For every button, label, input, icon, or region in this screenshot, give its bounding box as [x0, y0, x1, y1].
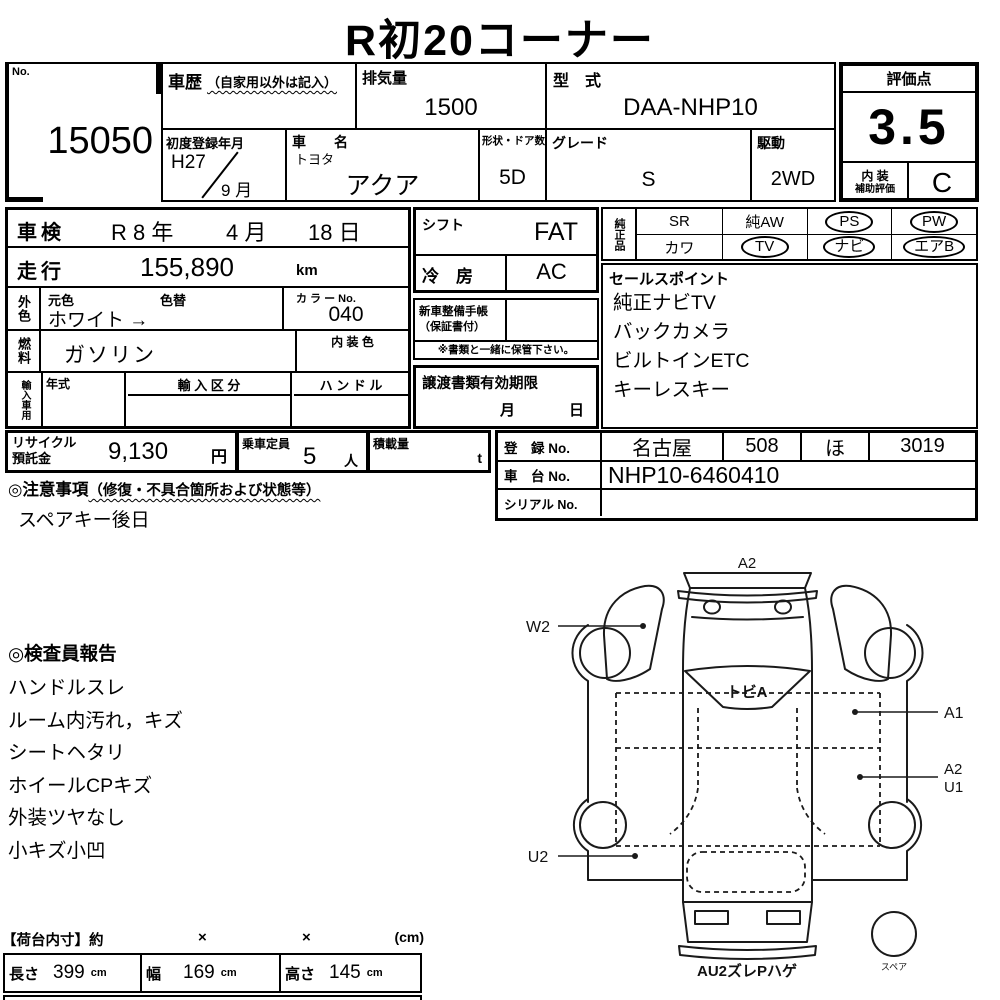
exterior-color-label: 外色 [8, 288, 41, 329]
right-door-open [831, 586, 891, 681]
chassis-number-row: 車 台 No. NHP10-6460410 [498, 462, 975, 490]
next-table-edge [3, 995, 422, 1000]
service-book-note: ※書類と一緒に保管下さい。 [415, 340, 597, 358]
cargo-length-cell: 長さ 399 cm [5, 955, 142, 991]
color-no-value: 040 [284, 303, 408, 327]
load-capacity-unit: t [477, 450, 482, 466]
service-book-box: 新車整備手帳 （保証書付） ※書類と一緒に保管下さい。 [413, 298, 599, 360]
recycle-deposit-value: 9,130 [108, 438, 168, 466]
caution-text: スペアキー後日 [8, 505, 320, 532]
history-cell: 車歴 （自家用以外は記入） [161, 62, 357, 130]
registration-number-label: 登 録 No. [498, 433, 602, 460]
mileage-value: 155,890 [140, 252, 234, 283]
sales-point: 純正ナビTV [603, 289, 976, 318]
inspector-report-label: ◎検査員報告 [8, 640, 183, 666]
import-year-cell: 年式 [43, 373, 126, 426]
fuel-value: ガソリン [64, 339, 156, 369]
chassis-number-value: NHP10-6460410 [602, 462, 975, 488]
grade-value: S [547, 168, 750, 192]
cargo-dimensions-header: 【荷台内寸】約 × × (cm) [2, 929, 424, 951]
grade-label: グレード [552, 133, 608, 153]
sales-point: ビルトインETC [603, 347, 976, 376]
score-value: 3.5 [843, 93, 975, 161]
exterior-color-row: 外色 元色 色替 ホワイト → カ ラ ー No. 040 [8, 288, 408, 331]
registration-number-row: 登 録 No. 名古屋 508 ほ 3019 [498, 433, 975, 462]
damage-code-front: A2 [738, 555, 756, 572]
inspector-finding: シートヘタリ [8, 737, 183, 770]
inspector-finding: ホイールCPキズ [8, 770, 183, 803]
cargo-height-value: 145 [329, 962, 361, 984]
sales-point: バックカメラ [603, 318, 976, 347]
model-code-value: DAA-NHP10 [547, 94, 834, 122]
spare-tire-label: スペア [881, 962, 907, 972]
car-name-cell: 車 名 トヨタ アクア [285, 128, 480, 202]
cargo-width-cell: 幅 169 cm [142, 955, 281, 991]
serial-number-value [602, 490, 975, 516]
interior-score-row: 内 装 補助評価 C [843, 161, 975, 202]
oem-item-airbag: エアB [891, 234, 976, 259]
auction-sheet-page: { "title": "R初20コーナー", "header": { "no":… [0, 0, 1000, 1000]
ac-value: AC [507, 259, 596, 285]
interior-score-value: C [909, 163, 975, 202]
inspector-finding: ハンドルスレ [8, 672, 183, 705]
car-model: アクア [287, 166, 478, 202]
vehicle-detail-block: 車検 R 8 年 4 月 18 日 走行 155,890 km 外色 元色 色替… [5, 207, 411, 429]
transfer-day-label: 日 [569, 399, 584, 420]
exterior-color-value: ホワイト → [48, 305, 148, 332]
inspector-finding: 小キズ小凹 [8, 835, 183, 868]
shaken-row: 車検 R 8 年 4 月 18 日 [8, 210, 408, 248]
lot-number-box: No. 15050 [5, 62, 161, 202]
caution-label: ◎注意事項 [8, 481, 88, 499]
score-label: 評価点 [843, 66, 975, 93]
shaken-label: 車検 [17, 216, 65, 245]
page-title: R初20コーナー [0, 6, 1000, 68]
caution-note: （修復・不具合箇所および状態等） [88, 483, 320, 499]
interior-score-label: 内 装 補助評価 [843, 163, 909, 202]
damage-code-windshield: トビA [727, 684, 768, 701]
headlamp-washer [775, 601, 791, 614]
mileage-row: 走行 155,890 km [8, 248, 408, 288]
registration-table: 登 録 No. 名古屋 508 ほ 3019 車 台 No. NHP10-646… [495, 430, 978, 521]
fuel-row: 燃料 ガソリン 内 装 色 [8, 331, 408, 373]
inspector-finding: 外装ツヤなし [8, 802, 183, 835]
recycle-deposit-label: リサイクル 預託金 [12, 435, 76, 468]
oem-item-aw: 純AW [722, 209, 807, 234]
lot-number-value: 15050 [47, 120, 153, 163]
interior-color-label: 内 装 色 [297, 333, 408, 350]
oem-item-sr: SR [637, 209, 722, 234]
registration-kana: ほ [800, 433, 868, 460]
import-handle-cell: ハ ン ド ル [294, 373, 408, 426]
first-registration-year: H27 [171, 152, 206, 174]
load-capacity-cell: 積載量 t [367, 430, 491, 473]
car-damage-diagram: A2 W2 トビA A1 A2 U1 U2 AU2ズレPハゲ スペア [500, 550, 992, 1000]
multiply-sign: × [198, 929, 207, 946]
doors-value: 5D [480, 166, 545, 190]
caution-section: ◎注意事項（修復・不具合箇所および状態等） スペアキー後日 [8, 476, 320, 532]
shaken-year: R 8 年 [111, 215, 173, 247]
body-left-edge [683, 588, 690, 902]
registration-number: 3019 [868, 433, 975, 460]
import-year-label: 年式 [46, 375, 70, 392]
left-door-open [604, 586, 664, 681]
shift-ac-box: シフト FAT 冷 房 AC [413, 207, 599, 293]
model-code-label: 型 式 [553, 67, 601, 91]
import-handle-label: ハ ン ド ル [294, 375, 408, 394]
sales-points-box: セールスポイント 純正ナビTV バックカメラ ビルトインETC キーレスキー [601, 263, 978, 429]
cargo-width-value: 169 [183, 962, 215, 984]
ac-row: 冷 房 AC [416, 256, 596, 290]
first-registration-month: 9 月 [221, 176, 252, 201]
history-note: （自家用以外は記入） [207, 72, 337, 91]
seating-capacity-value: 5 [303, 443, 316, 471]
shaken-day: 18 日 [308, 215, 361, 247]
rear-panel [683, 902, 812, 942]
oem-item-navi: ナビ [807, 234, 892, 259]
oem-item-tv: TV [722, 234, 807, 259]
import-division-cell: 輸 入 区 分 [128, 373, 292, 426]
service-book-label: 新車整備手帳 （保証書付） [415, 300, 507, 340]
recycle-deposit-unit: 円 [211, 443, 227, 467]
fuel-label: 燃料 [8, 331, 41, 371]
callout-lines [558, 623, 938, 859]
multiply-sign: × [302, 929, 311, 946]
transfer-docs-label: 譲渡書類有効期限 [422, 372, 538, 393]
mileage-unit: km [296, 262, 318, 279]
ac-label: 冷 房 [422, 262, 473, 287]
left-rear-fender [574, 799, 683, 880]
front-bumper [684, 573, 811, 588]
import-label: 輸入車用 [8, 373, 43, 426]
seating-capacity-label: 乗車定員 [242, 435, 290, 452]
lot-number-label: No. [12, 66, 30, 78]
damage-code-u2: U2 [528, 849, 549, 866]
drive-label: 駆動 [757, 133, 785, 153]
displacement-value: 1500 [357, 94, 545, 122]
oem-item-ps: PS [807, 209, 892, 234]
car-outline [572, 573, 922, 959]
history-label: 車歴 [168, 68, 202, 93]
callout-dot [857, 774, 863, 780]
doors-cell: 形状・ドア数 5D [478, 128, 547, 202]
registration-area: 名古屋 [602, 433, 722, 460]
drive-value: 2WD [752, 168, 834, 191]
first-registration-label: 初度登録年月 [166, 133, 244, 152]
floor-plan-dashed [616, 693, 880, 846]
damage-code-w2: W2 [526, 619, 550, 636]
sales-point: キーレスキー [603, 376, 976, 405]
callout-dot [640, 623, 646, 629]
rear-right-wheel [869, 802, 915, 848]
spare-tire [872, 912, 916, 956]
first-registration-cell: 初度登録年月 H27 9 月 [161, 128, 287, 202]
oem-label: 純正品 [603, 209, 637, 259]
tail-light [767, 911, 800, 924]
oem-grid: SR 純AW PS PW カワ TV ナビ エアB [637, 209, 976, 259]
body-right-edge [805, 588, 812, 902]
right-rear-fender [812, 799, 921, 880]
import-division-label: 輸 入 区 分 [128, 375, 290, 394]
front-bumper-lip [678, 591, 817, 603]
callout-dot [852, 709, 858, 715]
cargo-dimensions-table: 長さ 399 cm 幅 169 cm 高さ 145 cm [3, 953, 422, 993]
rear-left-wheel [580, 802, 626, 848]
cargo-height-cell: 高さ 145 cm [281, 955, 420, 991]
damage-code-u1: U1 [944, 779, 963, 796]
corner-mark [5, 197, 43, 202]
shift-label: シフト [422, 215, 464, 235]
drive-cell: 駆動 2WD [750, 128, 836, 202]
inspector-finding: ルーム内汚れ，キズ [8, 705, 183, 738]
headlamp-washer [704, 601, 720, 614]
tail-light [695, 911, 728, 924]
damage-code-rear: AU2ズレPハゲ [697, 962, 797, 980]
transfer-month-label: 月 [500, 399, 515, 420]
interior-dashed-lines [616, 693, 880, 892]
displacement-cell: 排気量 1500 [355, 62, 547, 130]
caution-heading: ◎注意事項（修復・不具合箇所および状態等） [8, 476, 320, 500]
model-code-cell: 型 式 DAA-NHP10 [545, 62, 836, 130]
grade-cell: グレード S [545, 128, 752, 202]
shift-value: FAT [534, 218, 578, 247]
serial-number-row: シリアル No. [498, 490, 975, 516]
damage-code-a2: A2 [944, 761, 962, 778]
inspector-report-section: ◎検査員報告 ハンドルスレ ルーム内汚れ，キズ シートヘタリ ホイールCPキズ … [8, 640, 183, 867]
seating-capacity-cell: 乗車定員 5 人 [236, 430, 369, 473]
cm-unit-note: (cm) [394, 929, 424, 945]
divider [128, 394, 290, 396]
transfer-docs-box: 譲渡書類有効期限 月 日 [413, 365, 599, 429]
displacement-label: 排気量 [362, 67, 407, 88]
load-capacity-label: 積載量 [373, 435, 409, 452]
rear-bumper [679, 946, 816, 959]
score-box: 評価点 3.5 内 装 補助評価 C [839, 62, 979, 202]
mileage-label: 走行 [17, 255, 65, 284]
registration-class: 508 [722, 433, 800, 460]
serial-number-label: シリアル No. [498, 490, 602, 516]
recycle-deposit-cell: リサイクル 預託金 9,130 円 [5, 430, 238, 473]
chassis-number-label: 車 台 No. [498, 462, 602, 488]
callout-dot [632, 853, 638, 859]
cargo-dimensions-title: 【荷台内寸】約 [2, 929, 104, 950]
damage-code-a1: A1 [944, 705, 964, 722]
import-row: 輸入車用 年式 輸 入 区 分 ハ ン ド ル [8, 373, 408, 426]
doors-label: 形状・ドア数 [482, 133, 545, 148]
oem-item-leather: カワ [637, 234, 722, 259]
oem-item-pw: PW [891, 209, 976, 234]
rear-window-dashed [687, 852, 805, 892]
shaken-month: 4 月 [226, 215, 266, 247]
shift-row: シフト FAT [416, 210, 596, 256]
changed-color-label: 色替 [160, 290, 186, 309]
seating-capacity-unit: 人 [344, 451, 358, 471]
divider [294, 394, 408, 396]
sales-points-label: セールスポイント [603, 265, 976, 289]
oem-equipment-table: 純正品 SR 純AW PS PW カワ TV ナビ エアB [601, 207, 978, 261]
cargo-length-value: 399 [53, 962, 85, 984]
cowl-line [692, 617, 803, 620]
rear-arch-dashed [670, 788, 825, 834]
